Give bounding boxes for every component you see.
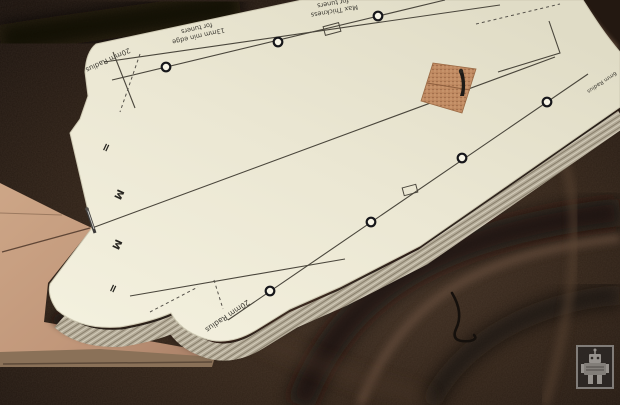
photo-stage: 20mm Radius 13mm min edge for tuners Max… <box>0 0 620 405</box>
tuner-hole <box>543 98 552 107</box>
tuner-hole <box>374 12 383 21</box>
robot-icon <box>577 346 613 388</box>
tuner-hole <box>266 287 275 296</box>
tuner-hole <box>458 154 467 163</box>
tuner-hole <box>274 38 283 47</box>
tuner-hole <box>162 63 171 72</box>
photo-scene: 20mm Radius 13mm min edge for tuners Max… <box>0 0 620 405</box>
tuner-hole <box>367 218 376 227</box>
